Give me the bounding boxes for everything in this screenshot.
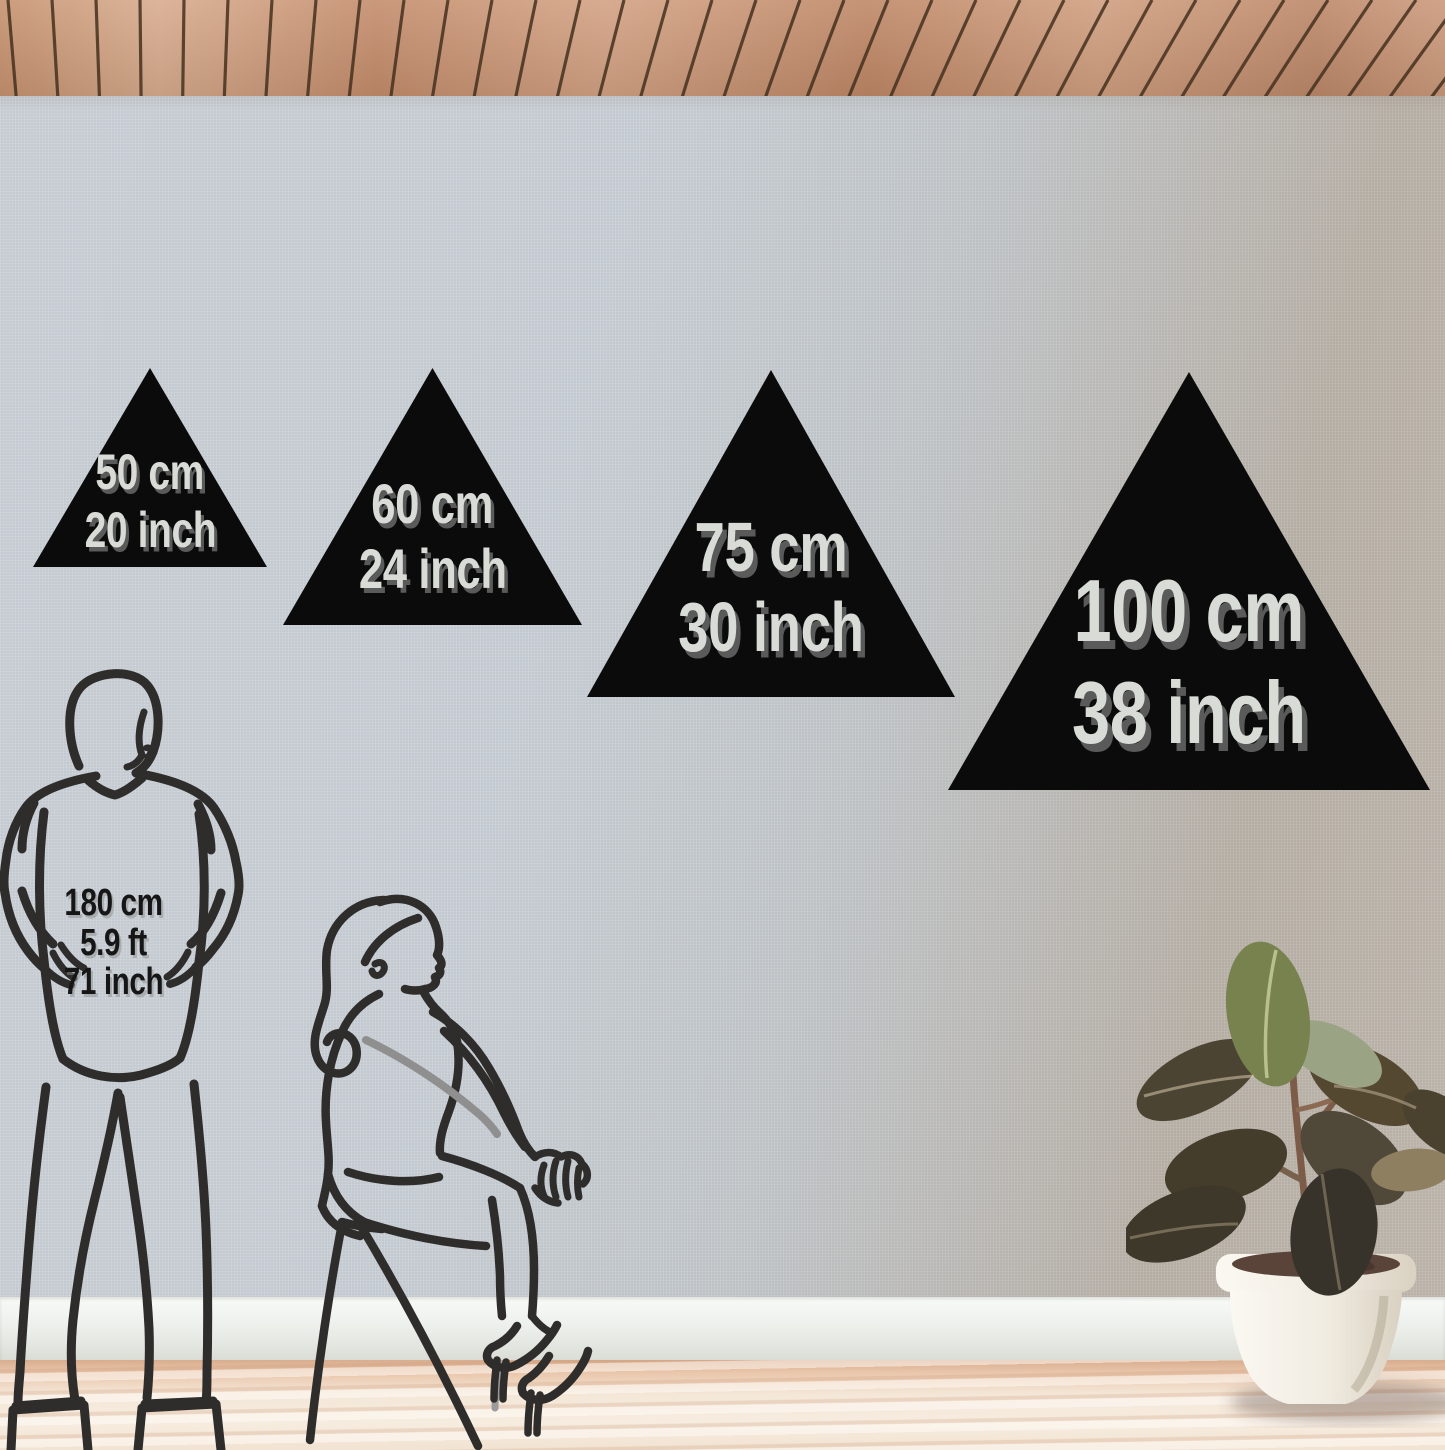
ceiling-slat-gap <box>474 0 492 97</box>
size-inch-text: 38 inch <box>1072 666 1306 759</box>
potted-plant <box>1126 928 1445 1428</box>
standing-man-figure <box>0 660 260 1450</box>
ceiling-slat-gap <box>1390 0 1445 97</box>
ceiling-slat-gap <box>140 0 141 97</box>
ceiling-slat-gap <box>8 0 16 97</box>
size-cm-text: 100 cm <box>1074 564 1304 657</box>
ceiling-slat-gap <box>1099 0 1152 97</box>
ceiling-slat-gap <box>1432 0 1445 97</box>
woman-arms <box>366 1012 535 1157</box>
stool <box>310 1222 478 1446</box>
ceiling-slat-gap <box>224 0 228 97</box>
ceiling-slat-gap <box>849 0 888 97</box>
ceiling-slat-gap <box>96 0 99 97</box>
ceiling-slat-gap <box>308 0 316 97</box>
size-inch-text: 24 inch <box>359 539 507 598</box>
ceiling-slat-gap <box>682 0 712 97</box>
ceiling-slat-gap <box>766 0 800 97</box>
ceiling-slat-gap <box>349 0 360 97</box>
ceiling-slat-gap <box>432 0 448 97</box>
seated-woman-figure <box>282 888 612 1450</box>
plant-leaves <box>1126 935 1445 1278</box>
woman-torso <box>322 991 459 1206</box>
size-guide-mockup: { "scene": { "title": "Triangle wall dec… <box>0 0 1445 1450</box>
height-cm: 180 cm <box>53 884 174 924</box>
size-inch-text: 30 inch <box>678 590 863 664</box>
height-ft: 5.9 ft <box>53 924 174 964</box>
height-reference-label: 180 cm 5.9 ft 71 inch <box>36 884 191 1003</box>
ceiling-slat-gap <box>724 0 756 97</box>
size-cm-text: 50 cm <box>96 446 205 499</box>
ceiling-slat-gap <box>1348 0 1416 97</box>
ceiling-slat-gap <box>1140 0 1196 97</box>
wood-slat-ceiling <box>0 0 1445 97</box>
size-inch-text: 20 inch <box>84 504 216 557</box>
ceiling-slat-gap <box>1015 0 1064 97</box>
ceiling-slat-gap <box>516 0 536 97</box>
ceiling-slat-gap <box>391 0 404 97</box>
woman-legs <box>487 1188 588 1433</box>
ceiling-slat-gap <box>890 0 932 97</box>
man-head <box>70 674 158 773</box>
ceiling-slat-gap <box>641 0 668 97</box>
height-inch: 71 inch <box>53 963 174 1003</box>
size-cm-text: 60 cm <box>372 474 494 533</box>
ceiling-slat-gap <box>807 0 844 97</box>
ceiling-slat-gap <box>599 0 624 97</box>
ceiling-slat-lines <box>0 0 1445 97</box>
ceiling-slat-gap <box>1307 0 1372 97</box>
ceiling-slat-gap <box>183 0 184 97</box>
ceiling-slat-gap <box>266 0 272 97</box>
man-legs <box>11 1084 221 1450</box>
woman-hands <box>535 1153 587 1204</box>
ceiling-slat-gap <box>1057 0 1108 97</box>
ceiling-slat-gap <box>557 0 580 97</box>
ceiling-slat-gap <box>974 0 1020 97</box>
ceiling-slat-gap <box>52 0 58 97</box>
size-cm-text: 75 cm <box>695 510 848 584</box>
ceiling-slat-gap <box>932 0 976 97</box>
